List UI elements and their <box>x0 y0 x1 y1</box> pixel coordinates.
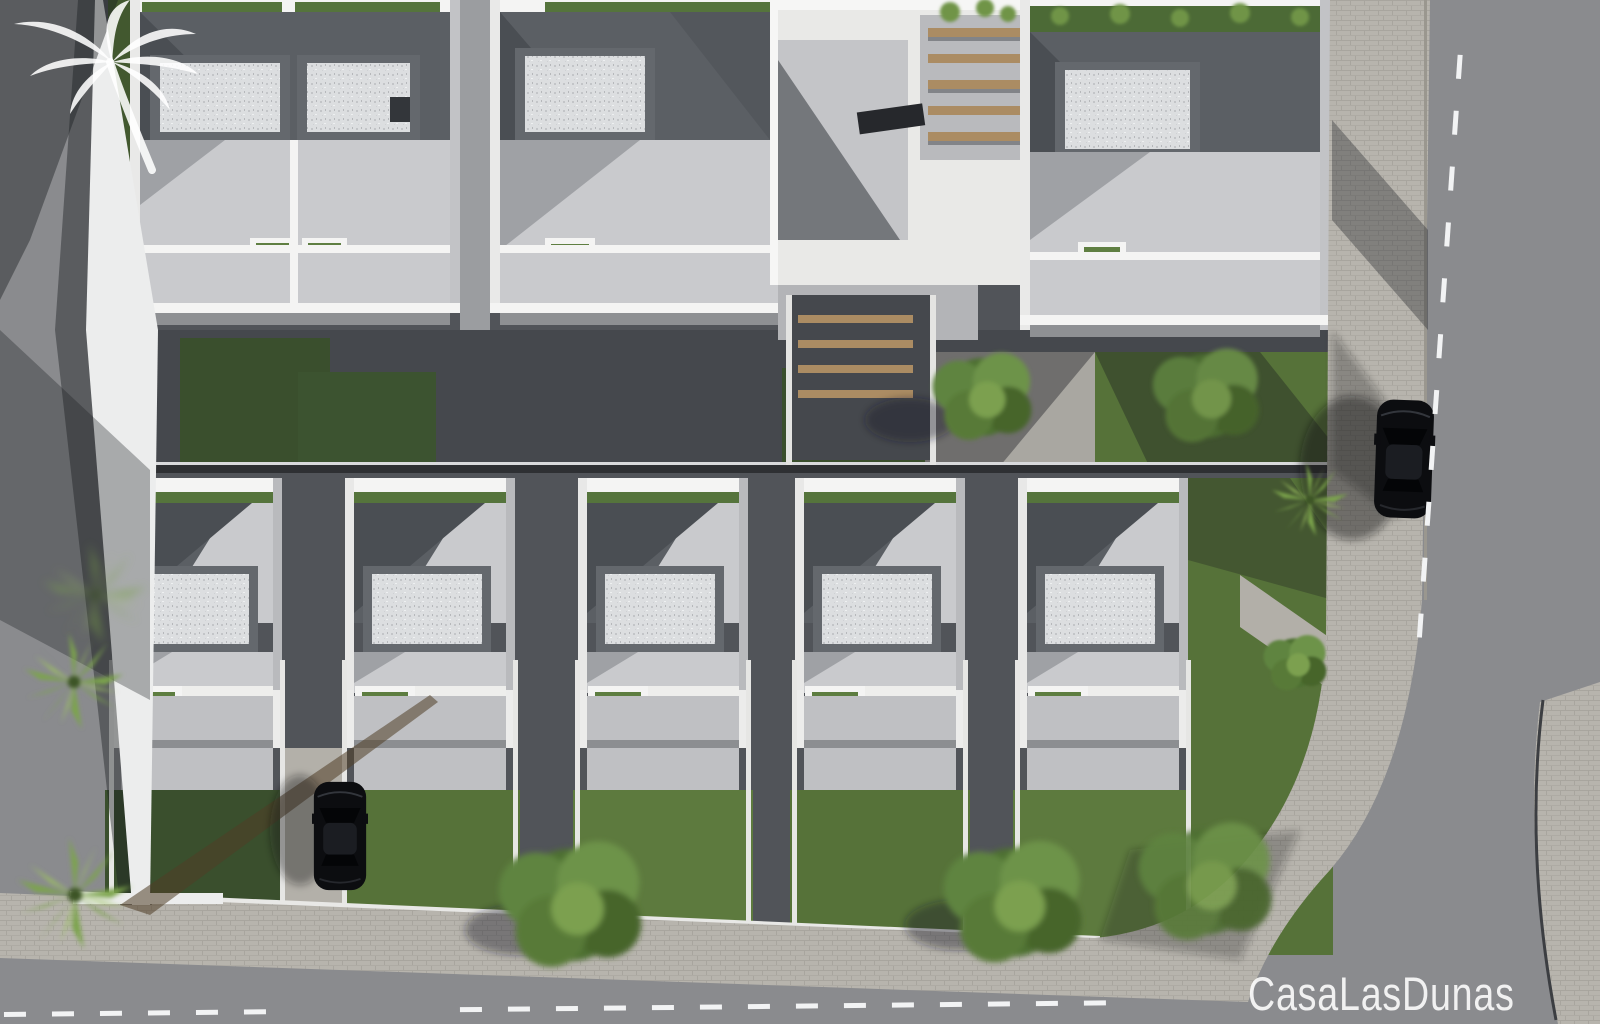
car-in-driveway <box>312 782 368 890</box>
tree <box>499 841 642 967</box>
tree <box>944 841 1082 962</box>
patio <box>1027 748 1179 793</box>
tree <box>933 353 1032 440</box>
shrub <box>1264 635 1327 690</box>
car-on-road <box>1371 399 1436 519</box>
garden-wall <box>150 465 1330 473</box>
top-building-villa <box>1020 0 1330 337</box>
backyard-lawn <box>298 372 436 466</box>
patio <box>587 748 739 793</box>
villa <box>795 478 965 748</box>
patio <box>804 748 956 793</box>
palm-tree-icon <box>0 0 202 174</box>
tree <box>1139 823 1272 940</box>
aerial-site-render: CasaLasDunas <box>0 0 1600 1024</box>
villa <box>578 478 748 748</box>
villa <box>1018 478 1188 748</box>
side-passage <box>460 0 490 330</box>
watermark-brand-text: CasaLasDunas <box>1248 966 1515 1021</box>
roof-hatch <box>390 97 410 122</box>
tree <box>1153 348 1259 442</box>
garden-wall-top <box>150 462 1330 465</box>
scene-svg <box>0 0 1600 1024</box>
patio <box>354 748 506 793</box>
